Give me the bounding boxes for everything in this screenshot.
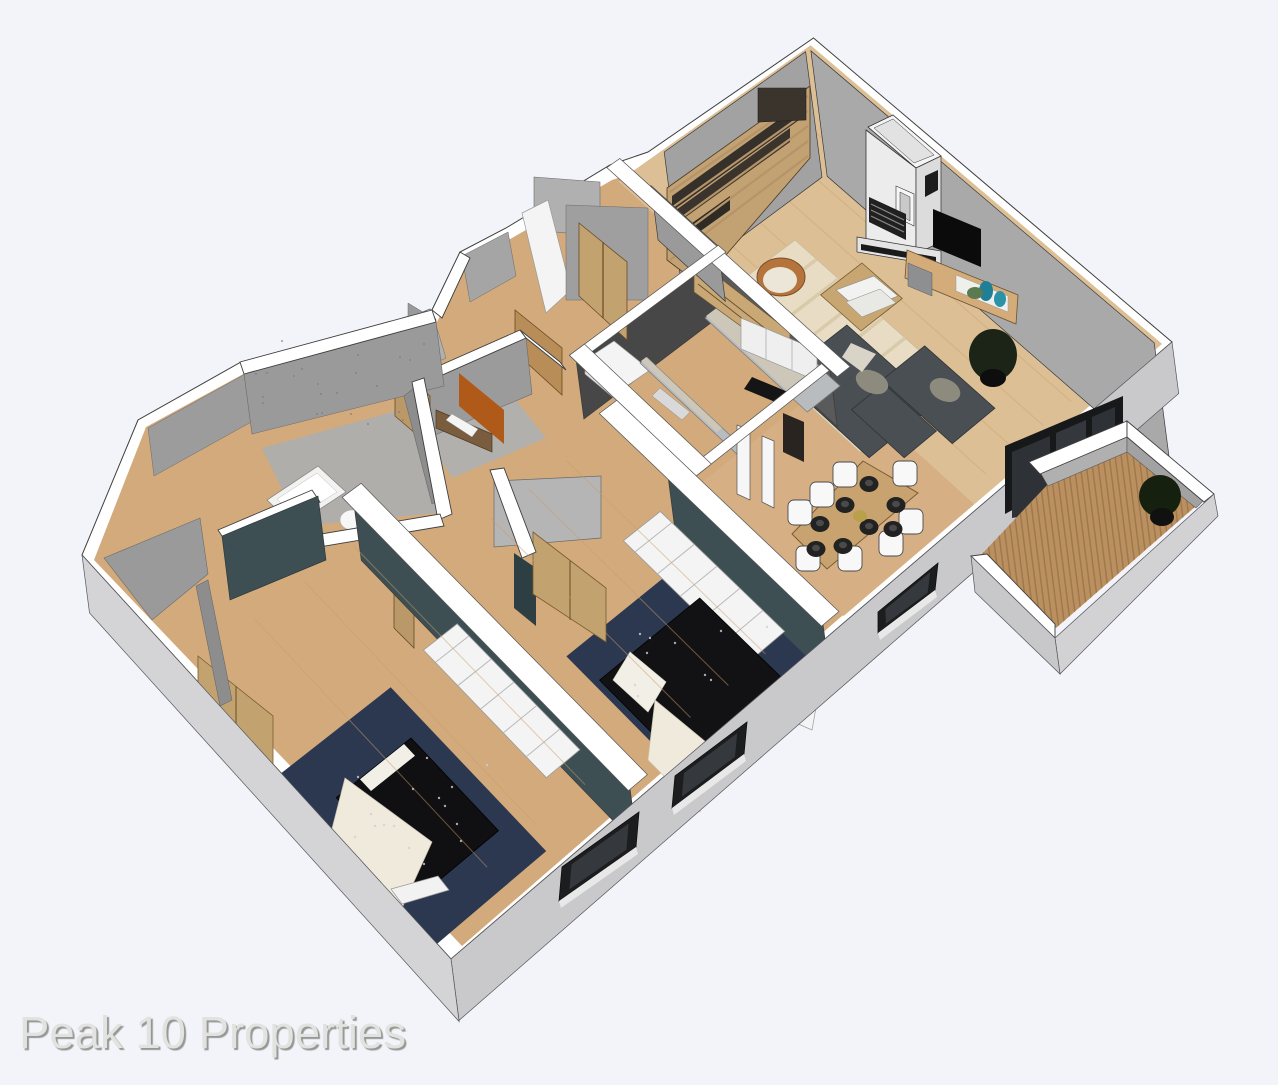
svg-text:Peak 10 Properties: Peak 10 Properties [19, 1007, 406, 1058]
